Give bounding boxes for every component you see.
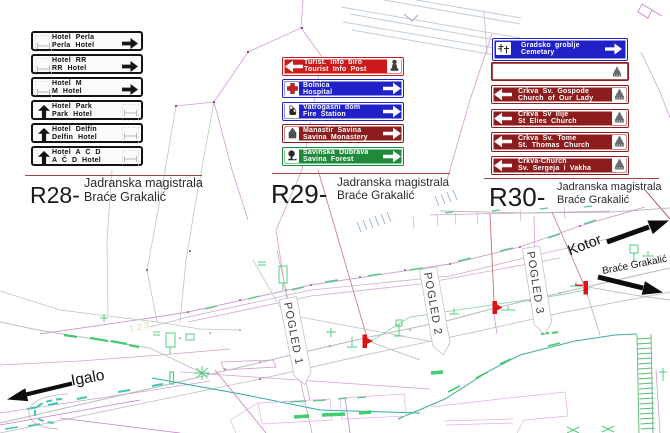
svg-text:1 2 3: 1 2 3 [128,320,150,334]
svg-text:Braće Grakalić: Braće Grakalić [601,254,667,277]
svg-text:Kotor: Kotor [566,232,604,259]
svg-text:Igalo: Igalo [70,367,106,390]
